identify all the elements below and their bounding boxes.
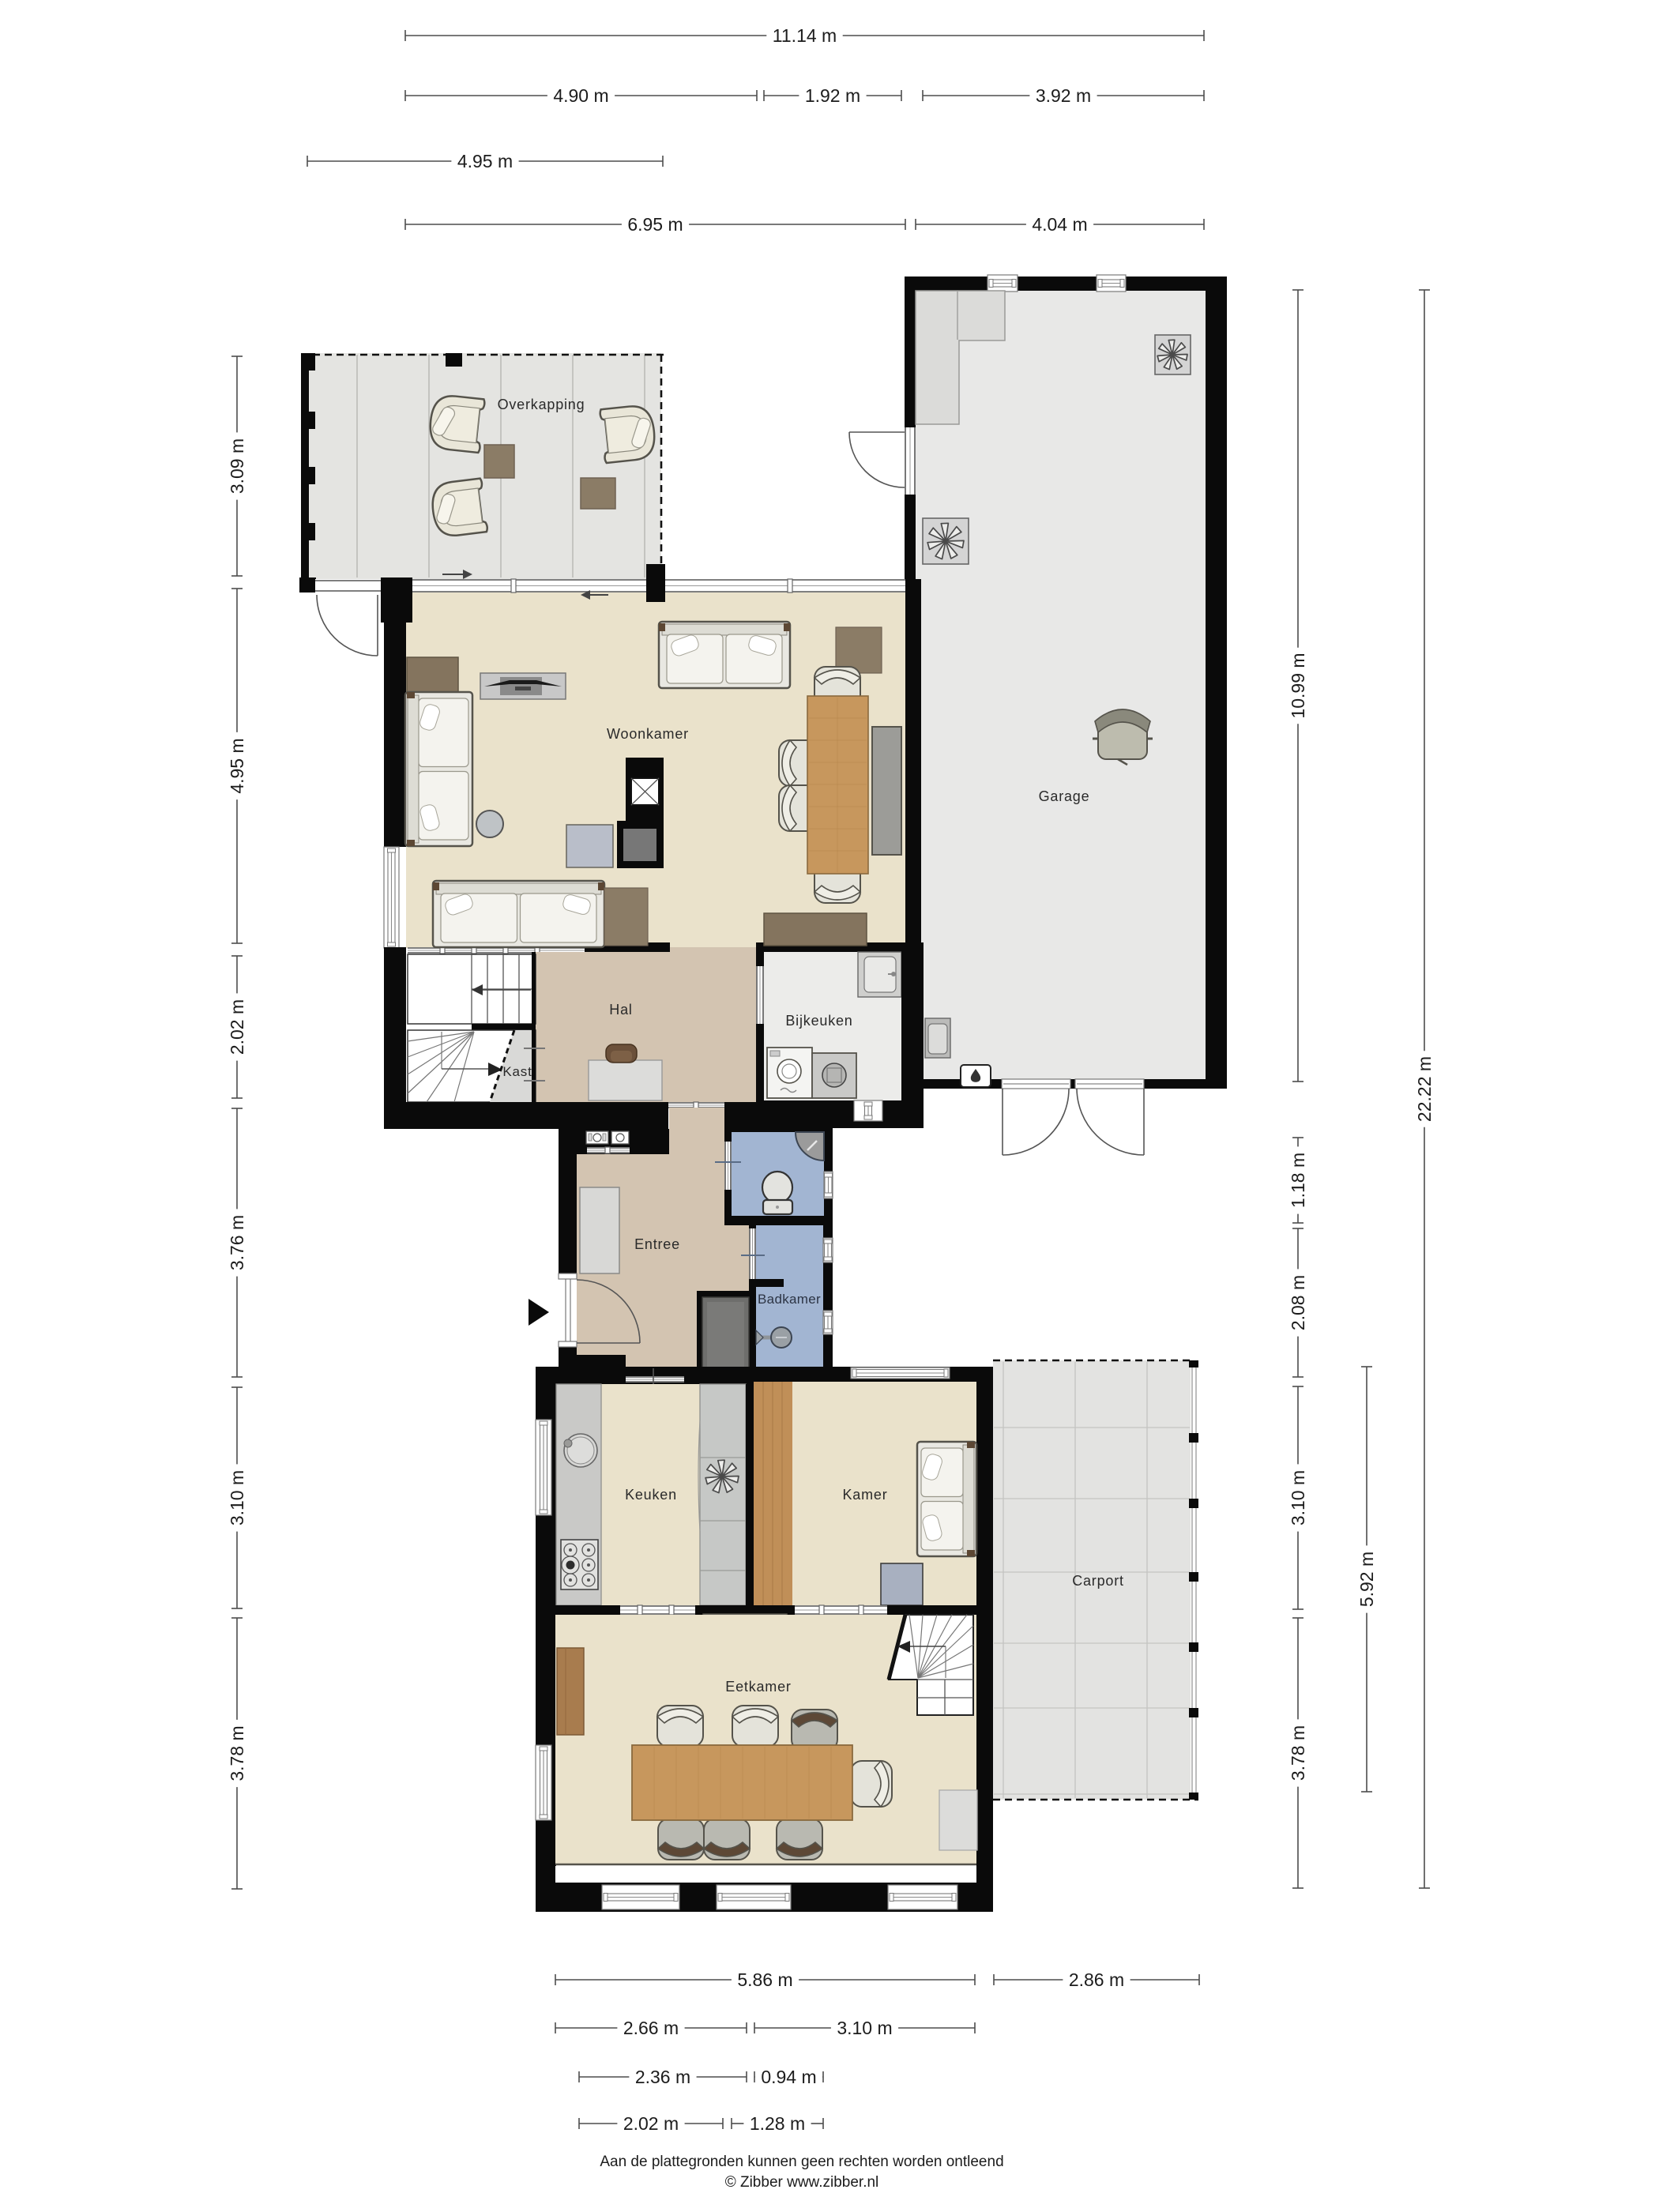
svg-text:2.08 m: 2.08 m [1288, 1275, 1308, 1330]
svg-text:3.92 m: 3.92 m [1036, 85, 1091, 106]
svg-text:4.95 m: 4.95 m [457, 151, 513, 171]
svg-text:3.10 m: 3.10 m [227, 1470, 247, 1525]
svg-text:4.95 m: 4.95 m [227, 738, 247, 793]
svg-text:2.86 m: 2.86 m [1069, 1969, 1124, 1990]
svg-text:Keuken: Keuken [625, 1487, 677, 1503]
svg-text:Hal: Hal [609, 1002, 632, 1018]
svg-text:2.36 m: 2.36 m [635, 2067, 690, 2087]
svg-text:0.94 m: 0.94 m [761, 2067, 816, 2087]
svg-text:Garage: Garage [1039, 788, 1090, 804]
svg-text:3.10 m: 3.10 m [1288, 1470, 1308, 1525]
svg-text:Woonkamer: Woonkamer [607, 726, 689, 742]
svg-text:4.90 m: 4.90 m [553, 85, 608, 106]
svg-text:3.09 m: 3.09 m [227, 438, 247, 494]
svg-text:6.95 m: 6.95 m [627, 214, 683, 235]
svg-text:Overkapping: Overkapping [498, 397, 585, 412]
svg-text:Kamer: Kamer [842, 1487, 887, 1503]
svg-text:1.28 m: 1.28 m [750, 2113, 805, 2134]
svg-text:Badkamer: Badkamer [758, 1292, 821, 1307]
svg-text:5.92 m: 5.92 m [1356, 1552, 1377, 1607]
svg-text:© Zibber www.zibber.nl: © Zibber www.zibber.nl [725, 2174, 879, 2191]
svg-text:2.02 m: 2.02 m [227, 999, 247, 1055]
svg-text:Aan de plattegronden kunnen ge: Aan de plattegronden kunnen geen rechten… [600, 2154, 1003, 2170]
svg-text:11.14 m: 11.14 m [773, 25, 837, 46]
svg-text:5.86 m: 5.86 m [737, 1969, 792, 1990]
svg-text:Eetkamer: Eetkamer [725, 1679, 791, 1695]
svg-text:3.10 m: 3.10 m [837, 2018, 892, 2038]
svg-text:2.02 m: 2.02 m [623, 2113, 679, 2134]
svg-text:10.99 m: 10.99 m [1288, 653, 1308, 718]
svg-text:3.78 m: 3.78 m [227, 1725, 247, 1781]
svg-text:3.78 m: 3.78 m [1288, 1725, 1308, 1781]
svg-text:22.22 m: 22.22 m [1414, 1056, 1435, 1122]
svg-text:Kast: Kast [502, 1064, 532, 1079]
svg-text:4.04 m: 4.04 m [1032, 214, 1087, 235]
svg-text:Entree: Entree [634, 1236, 680, 1252]
svg-text:Carport: Carport [1072, 1573, 1124, 1589]
svg-text:1.18 m: 1.18 m [1288, 1153, 1308, 1208]
svg-text:3.76 m: 3.76 m [227, 1215, 247, 1270]
svg-text:Bijkeuken: Bijkeuken [785, 1013, 852, 1029]
svg-text:2.66 m: 2.66 m [623, 2018, 679, 2038]
svg-text:1.92 m: 1.92 m [805, 85, 860, 106]
